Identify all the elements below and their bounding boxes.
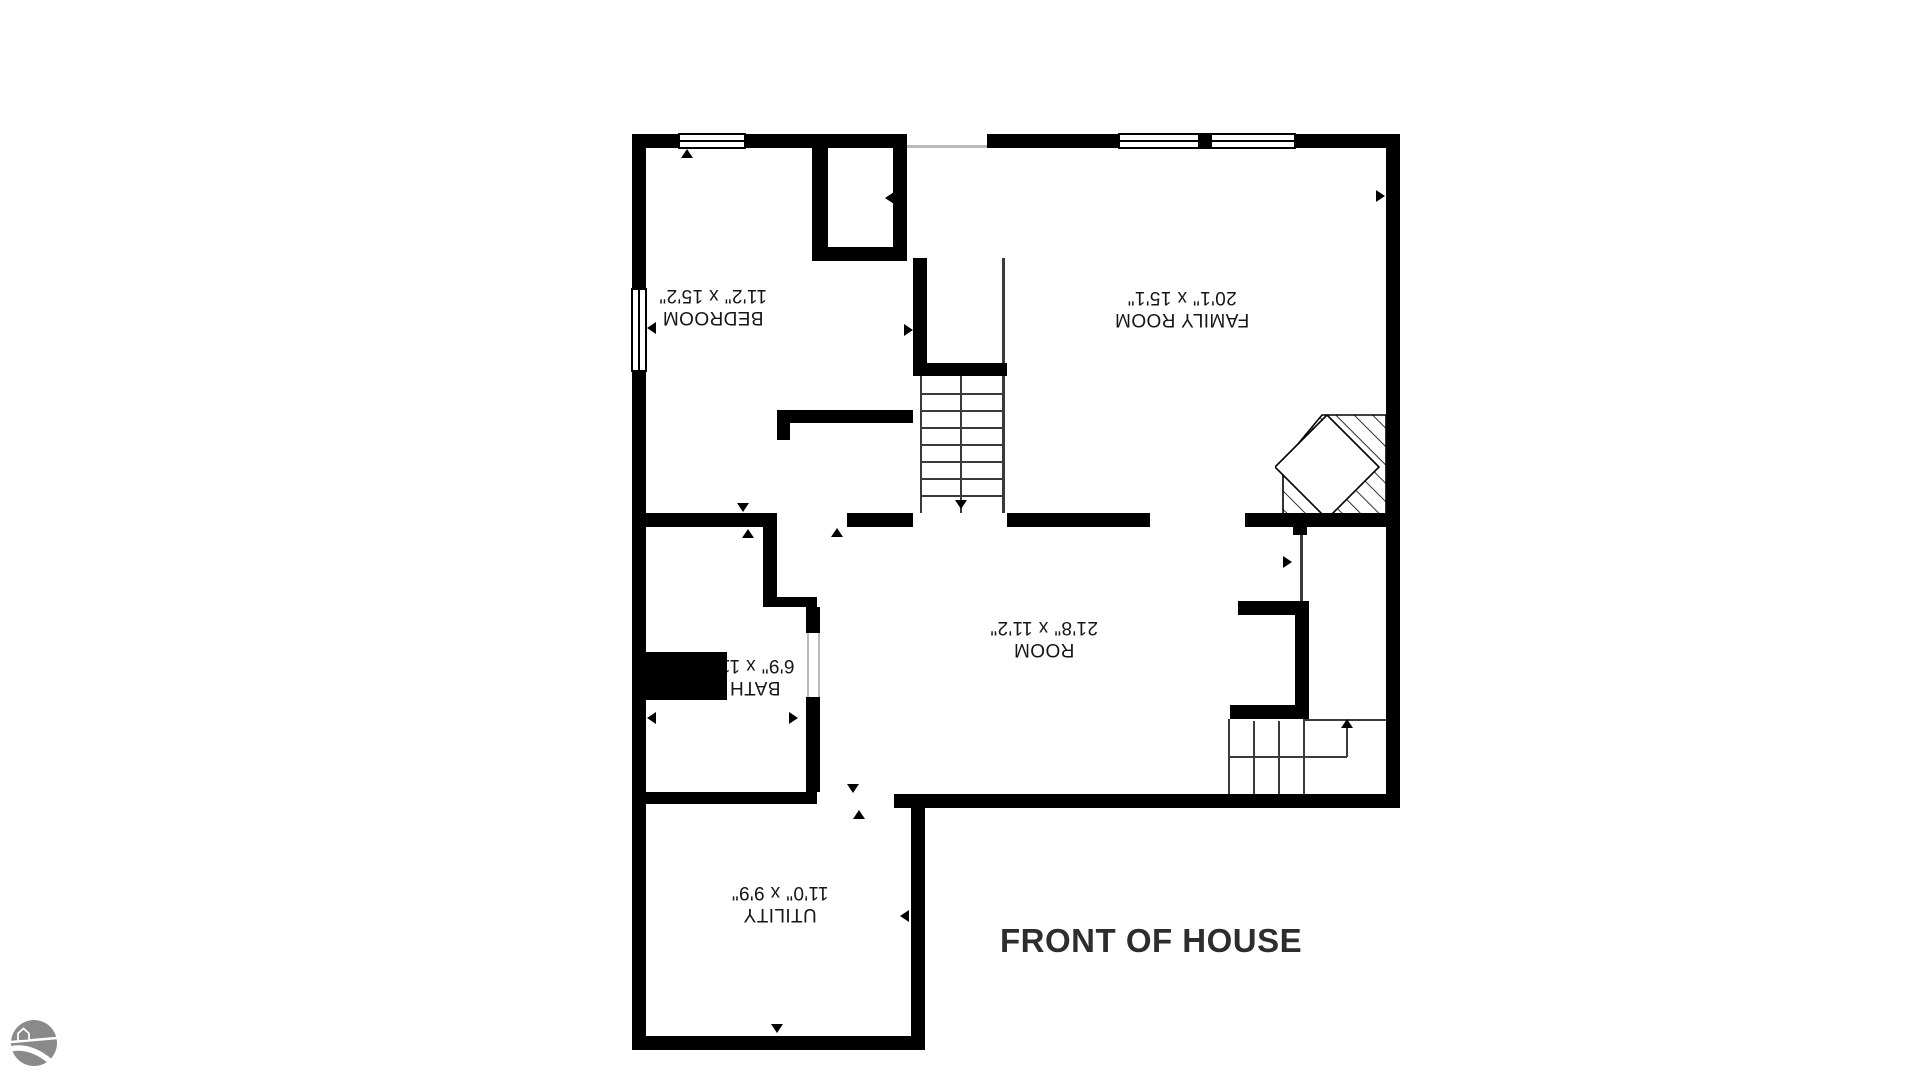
wall-bath-jog	[763, 597, 817, 607]
wall-bath-right	[806, 607, 820, 633]
room-dims: 11'2" x 15'2"	[659, 284, 767, 306]
stairs-down-arrow-icon	[955, 500, 967, 509]
marker-arrow-icon	[737, 503, 749, 512]
marker-arrow-icon	[771, 1024, 783, 1033]
room-label-bath: BATH 6'9" x 11'	[716, 654, 795, 698]
wall-stairwell-left	[913, 258, 927, 363]
wall-bedroom-bath-divider	[632, 513, 763, 527]
wall-stairwell-landing	[913, 363, 1007, 376]
marker-arrow-icon	[681, 149, 693, 158]
closet-door-line	[1300, 535, 1303, 601]
marker-arrow-icon	[1283, 556, 1292, 568]
room-dims: 21'8" x 11'2"	[990, 616, 1098, 638]
wall-room-bottom	[894, 794, 1400, 808]
room-label-room: ROOM 21'8" x 11'2"	[990, 616, 1098, 660]
wall-right	[1386, 134, 1400, 808]
wall-room-top	[1007, 513, 1150, 527]
wall-bath-right-upper	[763, 513, 777, 607]
entry-threshold-line	[897, 145, 987, 148]
wall-bath-bottom	[632, 792, 817, 804]
room-dims: 6'9" x 11'	[716, 654, 795, 676]
floor-plan-canvas: BEDROOM 11'2" x 15'2" FAMILY ROOM 20'1" …	[0, 0, 1920, 1080]
wall-top	[746, 134, 897, 148]
room-name: UTILITY	[731, 903, 828, 925]
front-of-house-label: FRONT OF HOUSE	[1000, 922, 1302, 960]
bath-fixture-block	[642, 652, 727, 700]
room-name: BATH	[716, 676, 795, 698]
room-name: FAMILY ROOM	[1115, 308, 1250, 330]
wall-bedroom-closet-top	[777, 410, 913, 423]
bath-door-jamb	[818, 633, 820, 697]
fireplace-hatched	[1275, 410, 1390, 522]
room-name: BEDROOM	[659, 306, 767, 328]
stair2-tread	[1303, 721, 1305, 796]
marker-arrow-icon	[885, 192, 894, 204]
room-label-family-room: FAMILY ROOM 20'1" x 15'1"	[1115, 286, 1250, 330]
stair2-edge-left	[1228, 719, 1230, 797]
marker-arrow-icon	[647, 322, 656, 334]
marker-arrow-icon	[789, 712, 798, 724]
wall-closet-bottom	[1230, 705, 1309, 719]
wall-bedroom-closet-stub	[777, 410, 790, 440]
marker-arrow-icon	[847, 784, 859, 793]
window-bedroom-top	[678, 133, 746, 149]
stair2-mid-line	[1228, 756, 1347, 758]
marker-arrow-icon	[853, 810, 865, 819]
stair2-tread	[1253, 721, 1255, 796]
room-label-bedroom: BEDROOM 11'2" x 15'2"	[659, 284, 767, 328]
stairs-up-arrow-icon	[1341, 719, 1353, 728]
room-dims: 20'1" x 15'1"	[1115, 286, 1250, 308]
wall-left	[632, 372, 646, 1050]
wall-familyroom-bottom	[1245, 513, 1400, 527]
stair2-tread	[1278, 721, 1280, 796]
wall-entry-hall-left	[893, 134, 907, 258]
wall-closet-right	[1295, 601, 1309, 719]
brand-logo-icon	[9, 1017, 61, 1071]
marker-arrow-icon	[1376, 190, 1385, 202]
wall-hall-divider	[847, 513, 913, 527]
wall-bedroom-right	[812, 148, 828, 247]
marker-arrow-icon	[904, 324, 913, 336]
wall-top	[1296, 134, 1400, 148]
wall-utility-bottom	[632, 1036, 925, 1050]
wall-closet-bottom	[812, 247, 907, 261]
wall-utility-right	[911, 796, 925, 1050]
window-bedroom-left	[631, 288, 647, 372]
room-label-utility: UTILITY 11'0" x 9'9"	[731, 881, 828, 925]
stair-landing-edge	[1002, 258, 1005, 513]
closet-door-stub	[1293, 527, 1307, 535]
room-dims: 11'0" x 9'9"	[731, 881, 828, 903]
marker-arrow-icon	[900, 910, 909, 922]
marker-arrow-icon	[647, 712, 656, 724]
wall-bath-right-lower	[806, 697, 820, 792]
stair2-arrow-stem	[1346, 727, 1348, 757]
bath-door-jamb	[807, 633, 809, 697]
wall-top	[987, 134, 1118, 148]
marker-arrow-icon	[831, 528, 843, 537]
wall-left	[632, 134, 646, 288]
room-name: ROOM	[990, 638, 1098, 660]
stair-arrow-stem	[960, 455, 962, 501]
window-mullion	[1198, 133, 1212, 149]
marker-arrow-icon	[742, 529, 754, 538]
